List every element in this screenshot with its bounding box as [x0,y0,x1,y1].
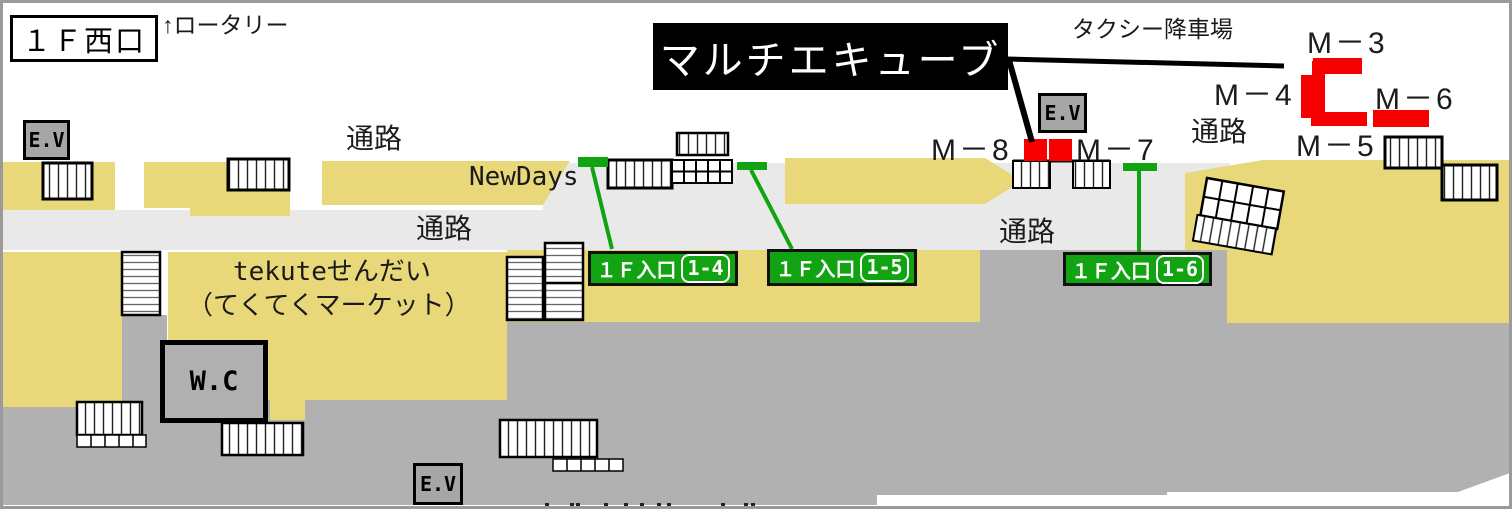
unit-m8-marker [1024,139,1047,161]
entrance-prefix: １Ｆ入口 [596,254,676,283]
floor-title-box: １Ｆ西口 [10,15,158,62]
shop-block [144,162,193,208]
stairs-icon [228,159,289,190]
elevator-label: E.V [28,128,64,152]
stairs-icon [677,133,728,155]
stairs-icon [1385,137,1442,168]
elevator-box: E.V [23,120,70,160]
banner-label: マルチエキューブ [660,28,1002,86]
newdays-label: NewDays [469,163,579,192]
stairs-icon [222,423,303,455]
rotary-note: ↑ロータリー [162,13,289,38]
unit-m4-marker [1301,75,1312,118]
toilet-box: W.C [160,340,268,423]
entrance-prefix: １Ｆ入口 [775,253,855,282]
label-m6: M－6 [1375,83,1456,116]
tilted-stairs-structure [1193,177,1284,254]
stairs-icon [500,420,597,457]
cell-row [553,459,623,471]
cell-row [77,435,146,447]
label-m4: M－4 [1214,79,1295,112]
label-m7: M－7 [1076,134,1157,167]
stairs-icon [507,257,543,320]
stairs-icon [77,402,142,435]
corridor-label: 通路 [416,214,472,245]
unit-m5-marker [1311,112,1367,126]
entrance-number: 1-5 [860,253,908,282]
toilet-label: W.C [190,366,239,397]
corridor-label: 通路 [346,124,402,155]
elevator-box: E.V [1038,93,1087,133]
stairs-icon [1442,165,1497,200]
entrance-number: 1-4 [681,254,729,283]
entrance-bar [578,157,608,167]
label-m8: M－8 [931,134,1012,167]
unit-m8-marker [1049,139,1072,161]
entrance-label-1-4: １Ｆ入口 1-4 [588,251,738,286]
floor-title: １Ｆ西口 [22,18,146,60]
label-m5: M－5 [1296,130,1377,163]
entrance-bar [737,162,767,170]
stairs-icon [43,163,92,199]
entrance-prefix: １Ｆ入口 [1071,255,1151,284]
shop-block [270,400,305,420]
stairs-icon [1013,161,1050,188]
tekute-label-line1: tekuteせんだい [233,258,431,287]
stairs-icon [545,243,583,320]
tekute-label-line2: （てくてくマーケット） [187,292,471,321]
entrance-label-1-5: １Ｆ入口 1-5 [767,249,917,286]
taxi-dropoff-label: タクシー降車場 [1072,17,1233,42]
label-m3: M－3 [1307,27,1388,60]
elevator-box: E.V [413,463,463,505]
stairs-icon [122,252,160,315]
grid-structure [672,160,732,183]
entrance-label-1-6: １Ｆ入口 1-6 [1063,252,1212,286]
multi-ecube-banner: マルチエキューブ [653,23,1008,90]
corridor-label: 通路 [1191,117,1247,148]
elevator-label: E.V [1044,101,1080,125]
entrance-number: 1-6 [1156,255,1204,284]
stairs-icon [608,160,672,188]
elevator-label: E.V [420,472,456,496]
shop-block [0,252,122,407]
corridor-label: 通路 [999,217,1055,248]
station-floor-map: １Ｆ西口 ↑ロータリー マルチエキューブ タクシー降車場 M－3 M－4 M－6… [0,0,1512,509]
